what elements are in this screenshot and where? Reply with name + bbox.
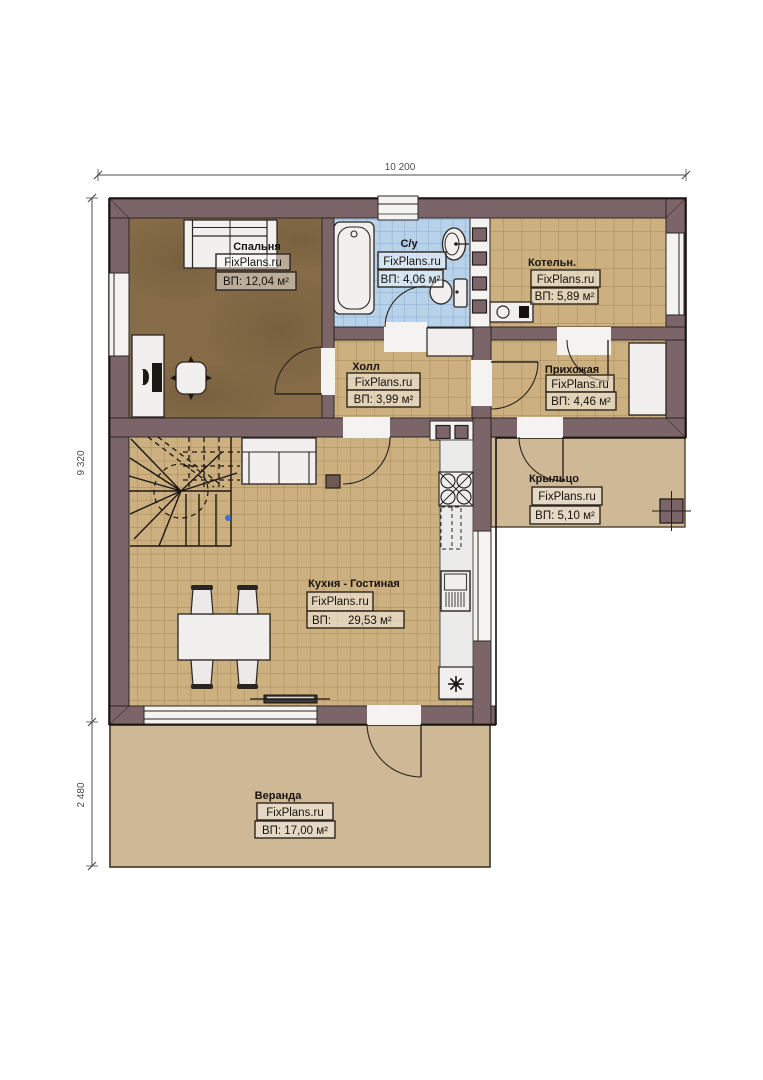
svg-text:FixPlans.ru: FixPlans.ru xyxy=(383,256,441,268)
svg-text:29,53 м²: 29,53 м² xyxy=(348,615,392,627)
svg-text:Прихожая: Прихожая xyxy=(545,364,599,376)
svg-text:2 480: 2 480 xyxy=(76,782,87,807)
svg-text:FixPlans.ru: FixPlans.ru xyxy=(355,377,413,389)
svg-text:ВП: 12,04 м²: ВП: 12,04 м² xyxy=(223,276,289,288)
svg-text:ВП:: ВП: xyxy=(312,615,331,627)
svg-text:Кухня - Гостиная: Кухня - Гостиная xyxy=(308,578,400,590)
svg-text:ВП: 4,06 м²: ВП: 4,06 м² xyxy=(381,274,441,286)
svg-text:FixPlans.ru: FixPlans.ru xyxy=(537,274,595,286)
svg-text:Спальня: Спальня xyxy=(233,241,281,253)
svg-text:FixPlans.ru: FixPlans.ru xyxy=(224,257,282,269)
svg-text:ВП: 5,10 м²: ВП: 5,10 м² xyxy=(535,510,595,522)
svg-text:ВП: 5,89 м²: ВП: 5,89 м² xyxy=(535,291,595,303)
svg-text:10 200: 10 200 xyxy=(385,162,416,173)
svg-text:Котельн.: Котельн. xyxy=(528,257,576,269)
svg-text:Крыльцо: Крыльцо xyxy=(529,473,579,485)
svg-text:FixPlans.ru: FixPlans.ru xyxy=(538,491,596,503)
svg-text:Веранда: Веранда xyxy=(255,790,303,802)
svg-text:С/у: С/у xyxy=(400,238,418,250)
svg-text:FixPlans.ru: FixPlans.ru xyxy=(551,379,609,391)
svg-text:Холл: Холл xyxy=(352,361,380,373)
svg-text:ВП: 17,00 м²: ВП: 17,00 м² xyxy=(262,825,328,837)
svg-text:FixPlans.ru: FixPlans.ru xyxy=(266,807,324,819)
svg-text:ВП: 3,99 м²: ВП: 3,99 м² xyxy=(354,394,414,406)
svg-text:9 320: 9 320 xyxy=(76,450,87,475)
svg-text:FixPlans.ru: FixPlans.ru xyxy=(311,596,369,608)
svg-text:ВП: 4,46 м²: ВП: 4,46 м² xyxy=(551,396,611,408)
